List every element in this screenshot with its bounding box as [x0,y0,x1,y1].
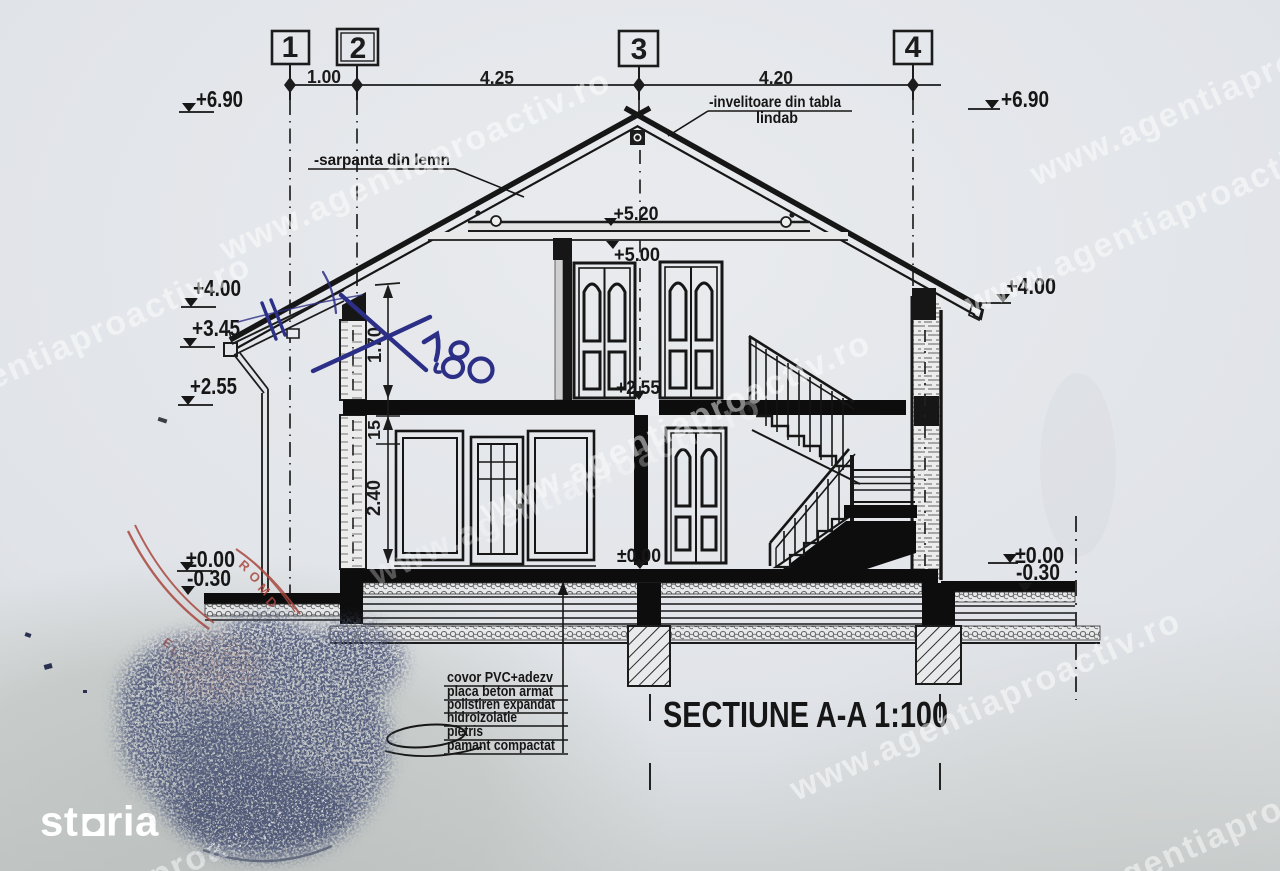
svg-text:15: 15 [364,420,384,440]
svg-text:+2.55: +2.55 [190,373,237,399]
svg-text:-invelitoare din tabla: -invelitoare din tabla [709,94,841,111]
svg-text:+5.20: +5.20 [614,203,659,225]
svg-text:-0.30: -0.30 [1016,559,1060,585]
svg-text:4: 4 [905,31,922,64]
svg-text:st: st [40,798,78,845]
svg-text:+5.00: +5.00 [614,244,660,266]
svg-text:+3.45: +3.45 [192,315,240,341]
svg-text:1: 1 [282,31,299,64]
svg-text:2: 2 [350,32,367,65]
svg-text:3: 3 [631,33,648,66]
svg-text:4.25: 4.25 [480,68,514,88]
svg-text:2.40: 2.40 [364,480,385,516]
svg-text:1.00: 1.00 [307,67,341,87]
svg-text:4.20: 4.20 [759,68,793,88]
svg-text:lindab: lindab [756,110,798,127]
svg-text:+6.90: +6.90 [196,86,243,112]
svg-text:+6.90: +6.90 [1001,86,1049,112]
